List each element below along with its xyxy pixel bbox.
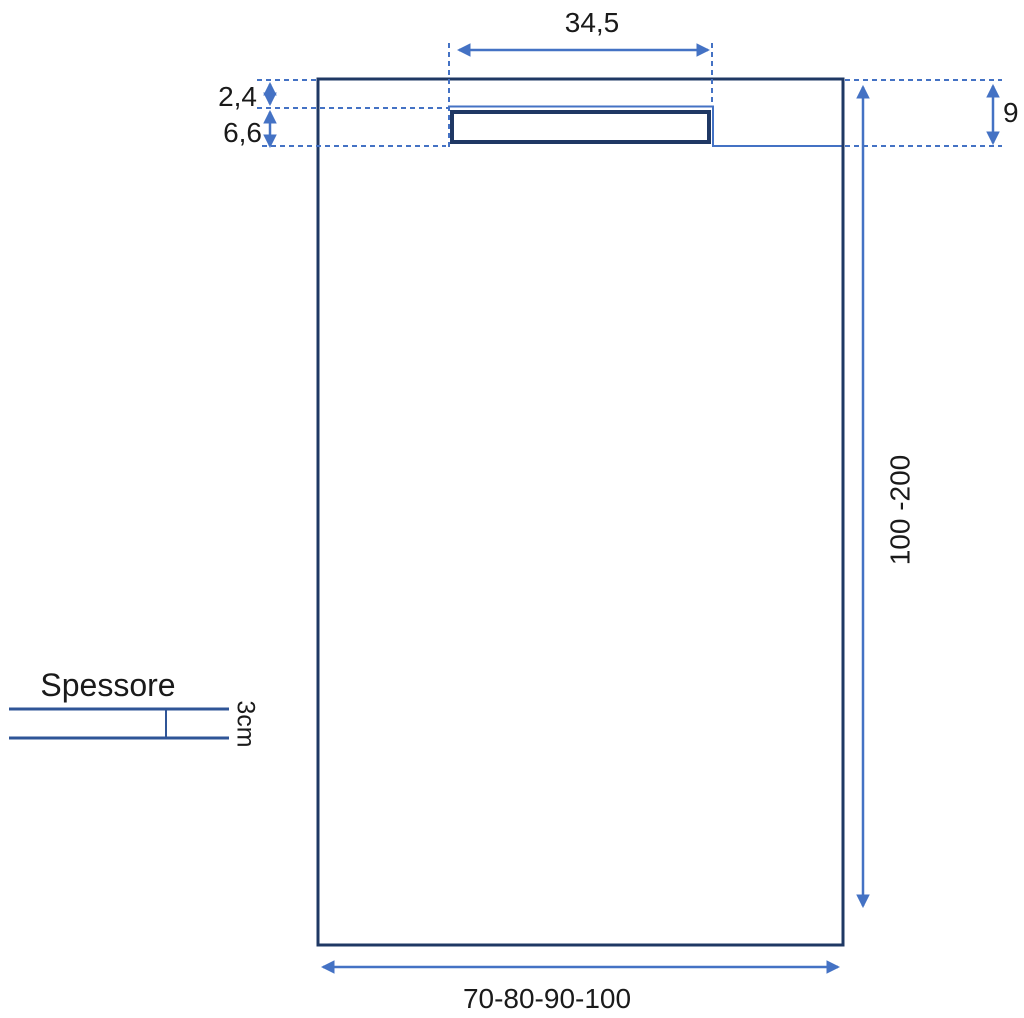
diagram-canvas: 34,5 2,4 6,6 9 100 -200 70-80-90-100 Spe… (0, 0, 1024, 1018)
length-range-label: 100 -200 (884, 455, 915, 566)
width-options-label: 70-80-90-100 (463, 983, 631, 1014)
tray-outline (318, 79, 843, 945)
thickness-value-label: 3cm (231, 700, 259, 747)
drain-slot-height-label: 6,6 (223, 117, 262, 148)
drain-cover (452, 112, 709, 142)
shower-tray-dimension-diagram: 34,5 2,4 6,6 9 100 -200 70-80-90-100 Spe… (0, 0, 1024, 1018)
drain-zone-depth-label: 9 (1003, 97, 1019, 128)
top-edge-offset-label: 2,4 (218, 81, 257, 112)
thickness-title-label: Spessore (40, 667, 175, 703)
drain-width-label: 34,5 (565, 7, 620, 38)
